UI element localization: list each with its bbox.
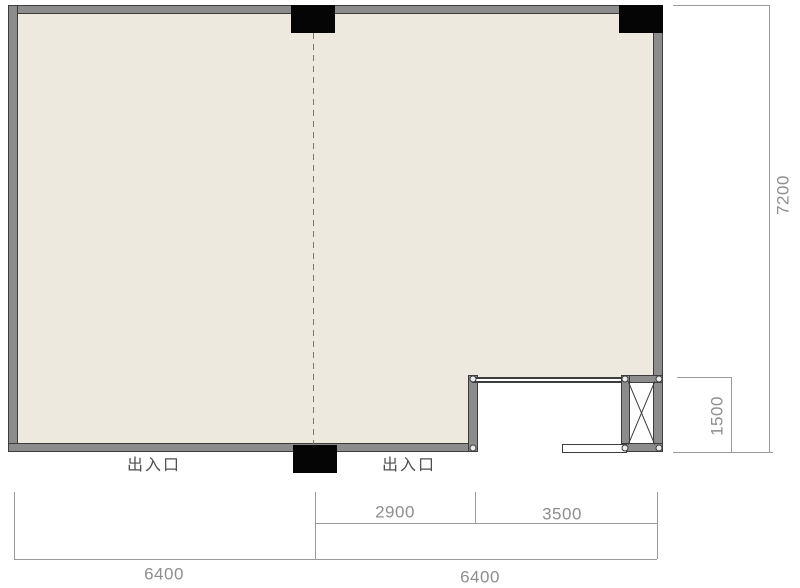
wall-joint xyxy=(656,376,663,383)
low-wall-bar xyxy=(562,444,627,453)
dimension-line-2900-3500 xyxy=(315,523,657,524)
dimension-line-7200 xyxy=(769,5,770,453)
pillar-marker-top-right xyxy=(619,5,663,33)
extension-line-bottom-mid xyxy=(475,492,476,523)
extension-line-bottom-center xyxy=(315,492,316,559)
dimension-label-6400-left: 6400 xyxy=(144,566,184,583)
entrance-label-left: 出入口 xyxy=(127,457,181,473)
wall-joint xyxy=(622,445,629,452)
wall-left xyxy=(8,5,18,452)
extension-line-notch-top xyxy=(677,377,731,378)
dimension-label-3500: 3500 xyxy=(542,506,582,523)
entrance-label-right: 出入口 xyxy=(382,457,436,473)
wall-notch-vertical xyxy=(468,375,478,452)
dimension-label-1500: 1500 xyxy=(709,396,726,436)
wall-joint xyxy=(656,445,663,452)
dimension-line-6400 xyxy=(14,559,657,560)
pillar-marker-bottom-center xyxy=(293,445,337,473)
dimension-label-7200: 7200 xyxy=(775,175,792,215)
extension-line-bottom-right xyxy=(673,452,773,453)
wall-top xyxy=(8,5,663,14)
window-line xyxy=(472,377,624,383)
wall-joint xyxy=(622,376,629,383)
wall-joint xyxy=(470,445,477,452)
center-dashed-line xyxy=(313,33,314,445)
extension-line-bottom-rightend xyxy=(657,492,658,559)
floor-area-lower-left xyxy=(17,378,469,444)
wall-bottom xyxy=(8,443,478,452)
floor-area-main xyxy=(17,13,654,378)
dimension-line-1500 xyxy=(731,377,732,453)
shaft-cross-icon xyxy=(628,381,655,445)
dimension-label-2900: 2900 xyxy=(375,504,415,521)
extension-line-top-right xyxy=(673,5,769,6)
dimension-label-6400-right: 6400 xyxy=(460,569,500,586)
wall-joint xyxy=(470,376,477,383)
floor-plan-canvas: 出入口 出入口 1500 7200 2900 3500 6400 6400 xyxy=(0,0,800,588)
pillar-marker-top-center xyxy=(291,5,335,33)
extension-line-bottom-left xyxy=(14,492,15,559)
